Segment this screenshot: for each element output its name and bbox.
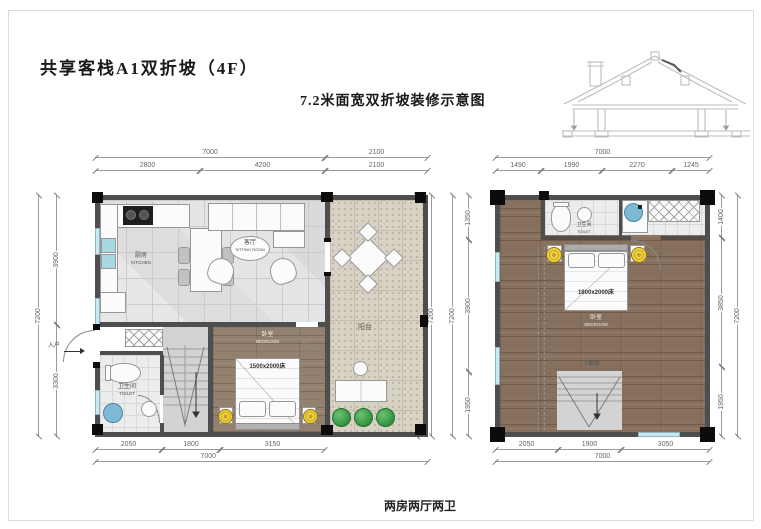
sofa-chaise <box>273 231 305 248</box>
entry-arrow-head-icon <box>80 348 85 354</box>
dim-line: 7200 <box>452 195 453 437</box>
wall <box>705 195 710 437</box>
dim-label: 4200 <box>254 162 272 170</box>
headboard <box>235 423 300 430</box>
wall <box>495 195 500 437</box>
bar-chair <box>178 269 190 286</box>
drawing-sheet: 共享客栈A1双折坡（4F） 7.2米面宽双折坡装修示意图 两房两厅两卫 <box>0 0 761 529</box>
sitting-label-cn: 客厅 <box>244 240 256 246</box>
column <box>490 427 505 442</box>
kitchen-sink-icon <box>101 254 116 269</box>
pillow <box>568 253 595 268</box>
interior-wall <box>318 322 325 327</box>
wardrobe <box>648 200 700 222</box>
dim-label: 7200 <box>734 307 742 325</box>
floor-plan-right: 下楼梯 卫生间 TOILET <box>495 195 710 437</box>
sofa <box>208 203 305 231</box>
dim-line: 3900 <box>468 240 469 372</box>
toilet-wall <box>160 423 164 432</box>
stool <box>353 361 368 376</box>
dim-line: 2050 <box>495 449 558 450</box>
dim-line: 7000 <box>495 157 710 158</box>
roof-slope-dashed-line <box>538 247 539 430</box>
dim-line: 3850 <box>721 238 722 367</box>
pillow <box>239 401 266 417</box>
bedroom-label: 卧室 BEDROOM <box>581 315 611 329</box>
column <box>92 192 103 203</box>
dim-line: 3150 <box>220 449 325 450</box>
dim-label: 2100 <box>368 149 386 157</box>
burner-icon <box>139 210 149 220</box>
column <box>321 425 333 435</box>
toilet-label: 卫生间 TOILET <box>101 384 153 398</box>
dim-line: 1990 <box>541 170 602 171</box>
dim-label: 2050 <box>120 441 138 449</box>
toilet-label-cn: 卫生间 <box>576 223 591 228</box>
bedroom-label: 卧室 BEDROOM <box>240 332 295 346</box>
entry-label: 入户 <box>48 343 60 350</box>
toilet-label-en: TOILET <box>577 229 591 234</box>
column <box>420 315 428 327</box>
lamp-icon <box>218 409 233 424</box>
dim-label: 7200 <box>428 307 436 325</box>
kitchen-sink-icon <box>101 238 116 253</box>
column <box>490 190 505 205</box>
dim-label: 3050 <box>657 441 675 449</box>
dim-label: 3900 <box>53 251 61 269</box>
toilet-tank <box>553 202 569 207</box>
dim-label: 1245 <box>682 162 700 170</box>
balcony-desk <box>335 380 387 402</box>
dim-line: 2100 <box>325 157 428 158</box>
bar-chair <box>178 247 190 264</box>
dim-line: 1400 <box>721 195 722 238</box>
toilet-wall <box>160 355 164 395</box>
window <box>638 432 680 437</box>
dim-label: 1490 <box>509 162 527 170</box>
bed-size-label: 1500x2000床 <box>236 364 299 371</box>
dim-label: 7000 <box>199 453 217 461</box>
toilet-label-en: TOILET <box>119 391 135 396</box>
pillow <box>269 401 296 417</box>
sink-icon <box>103 403 123 423</box>
interior-wall <box>100 322 296 327</box>
dim-line: 3050 <box>621 449 710 450</box>
dim-line: 3900 <box>56 195 57 325</box>
dim-label: 2800 <box>139 162 157 170</box>
column <box>321 192 333 202</box>
dim-line: 1950 <box>468 372 469 437</box>
toilet-tank <box>105 365 111 381</box>
dim-line: 7000 <box>95 157 325 158</box>
door-jamb <box>324 272 331 276</box>
dim-label: 7000 <box>594 149 612 157</box>
dim-label: 7200 <box>35 307 43 325</box>
fridge <box>100 292 126 313</box>
balcony-partition-wall <box>325 272 330 432</box>
balcony-label: 阳台 <box>347 323 383 331</box>
dim-label: 7200 <box>449 307 457 325</box>
interior-wall <box>208 327 213 432</box>
burner-icon <box>126 210 136 220</box>
lamp-icon <box>303 409 318 424</box>
dim-label: 3900 <box>465 297 473 315</box>
dim-line: 2800 <box>95 170 200 171</box>
cabinet <box>125 329 163 347</box>
column <box>415 424 426 435</box>
dim-line: 7200 <box>431 195 432 437</box>
dim-line: 3300 <box>56 325 57 437</box>
toilet-wall <box>661 236 705 240</box>
column <box>700 427 715 442</box>
floor-plan-left: 入户 厨房 KITCHEN 客厅 SITTING ROOM <box>95 195 428 437</box>
toilet-wall <box>545 236 631 240</box>
toilet-label-cn: 卫生间 <box>118 384 136 390</box>
dim-label: 7000 <box>201 149 219 157</box>
entry-arrow-icon <box>64 351 80 352</box>
dim-line: 1800 <box>162 449 220 450</box>
column <box>92 424 103 435</box>
dim-label: 3850 <box>718 294 726 312</box>
roof-section-diagram <box>562 50 750 144</box>
dim-line: 1950 <box>721 367 722 437</box>
dim-line: 7000 <box>95 461 428 462</box>
basin-icon <box>141 401 157 417</box>
wall <box>95 432 428 437</box>
dim-label: 2050 <box>518 441 536 449</box>
sitting-label-en: SITTING ROOM <box>235 247 264 252</box>
dim-line: 2270 <box>602 170 672 171</box>
dim-line: 2100 <box>325 170 428 171</box>
kitchen-label: 厨房 KITCHEN <box>119 253 163 267</box>
plant-icon <box>332 408 351 427</box>
dim-line: 7200 <box>38 195 39 437</box>
toilet-label: 卫生间 TOILET <box>567 222 601 235</box>
dim-label: 1400 <box>718 208 726 226</box>
dim-line: 4200 <box>200 170 325 171</box>
staircase <box>557 371 622 430</box>
dim-label: 1950 <box>718 393 726 411</box>
lamp-icon <box>631 247 647 263</box>
dim-label: 3150 <box>264 441 282 449</box>
dim-line: 7000 <box>495 461 710 462</box>
bed-size-label: 1800x2000床 <box>565 290 627 297</box>
kitchen-label-en: KITCHEN <box>131 260 151 265</box>
dim-label: 1900 <box>581 441 599 449</box>
dim-label: 2100 <box>368 162 386 170</box>
bedroom-label-cn: 卧室 <box>590 315 602 321</box>
lamp-icon <box>546 247 562 263</box>
staircase <box>163 327 208 432</box>
dim-line: 1350 <box>468 195 469 240</box>
dim-label: 1990 <box>563 162 581 170</box>
dim-line: 1245 <box>672 170 710 171</box>
column <box>539 191 549 200</box>
headboard <box>564 244 628 251</box>
roof-slope-dashed-line <box>544 247 545 430</box>
sheet-subtitle: 7.2米面宽双折坡装修示意图 <box>300 90 486 110</box>
door-jamb <box>93 362 100 368</box>
pillow <box>598 253 625 268</box>
column <box>700 190 715 205</box>
window <box>495 347 500 385</box>
wall <box>95 195 428 200</box>
faucet-icon <box>638 205 642 209</box>
sitting-room-label: 客厅 SITTING ROOM <box>230 240 270 254</box>
dim-label: 7000 <box>594 453 612 461</box>
door-jamb <box>324 238 331 242</box>
stairs-label: 下楼梯 <box>573 361 609 368</box>
dim-label: 3300 <box>53 372 61 390</box>
basin-icon <box>577 207 592 222</box>
dim-label: 1950 <box>465 396 473 414</box>
dim-label: 1350 <box>465 209 473 227</box>
toilet-wall <box>100 351 163 355</box>
plant-icon <box>376 408 395 427</box>
dim-line: 2050 <box>95 449 162 450</box>
dim-label: 2270 <box>628 162 646 170</box>
dim-line: 1490 <box>495 170 541 171</box>
balcony-partition-wall <box>325 200 330 242</box>
column <box>415 192 426 203</box>
sheet-caption: 两房两厅两卫 <box>360 497 480 514</box>
bedroom-label-en: BEDROOM <box>256 339 279 344</box>
toilet-wall <box>541 200 545 240</box>
dim-label: 1800 <box>182 441 200 449</box>
sheet-title: 共享客栈A1双折坡（4F） <box>40 54 259 79</box>
toilet-icon <box>107 363 141 383</box>
dim-line: 1900 <box>558 449 621 450</box>
plant-icon <box>354 408 373 427</box>
bedroom-label-en: BEDROOM <box>584 322 607 327</box>
dim-line: 7200 <box>737 195 738 437</box>
bedroom-label-cn: 卧室 <box>261 332 273 338</box>
window <box>95 390 100 415</box>
window <box>495 252 500 282</box>
kitchen-label-cn: 厨房 <box>135 253 147 259</box>
